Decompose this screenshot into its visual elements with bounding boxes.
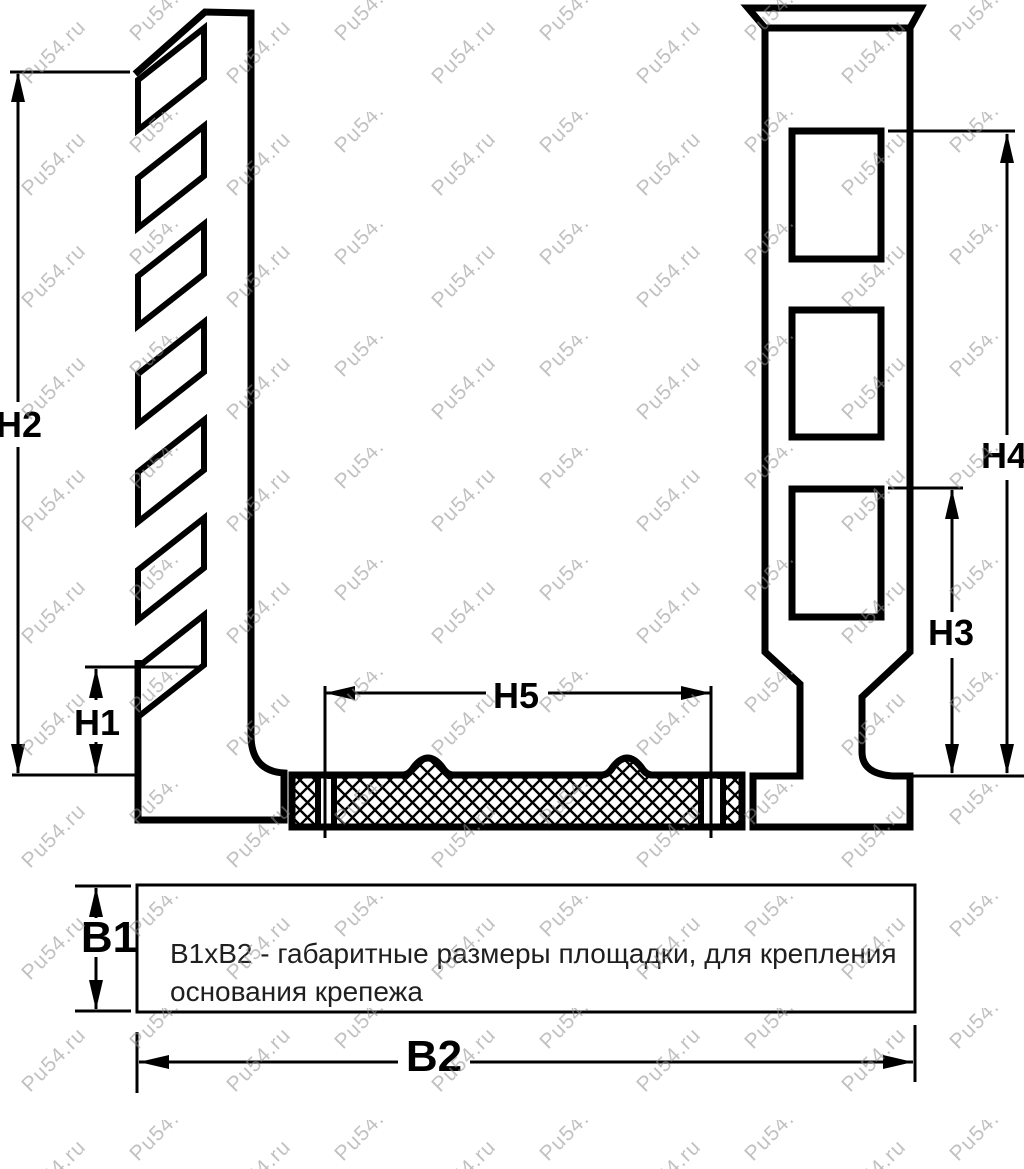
watermark-layer xyxy=(0,0,1024,1169)
technical-drawing-page: Pu54.ru Pu54.ru H2 xyxy=(0,0,1024,1169)
fastener-technical-drawing: Pu54.ru Pu54.ru H2 xyxy=(0,0,1024,1169)
